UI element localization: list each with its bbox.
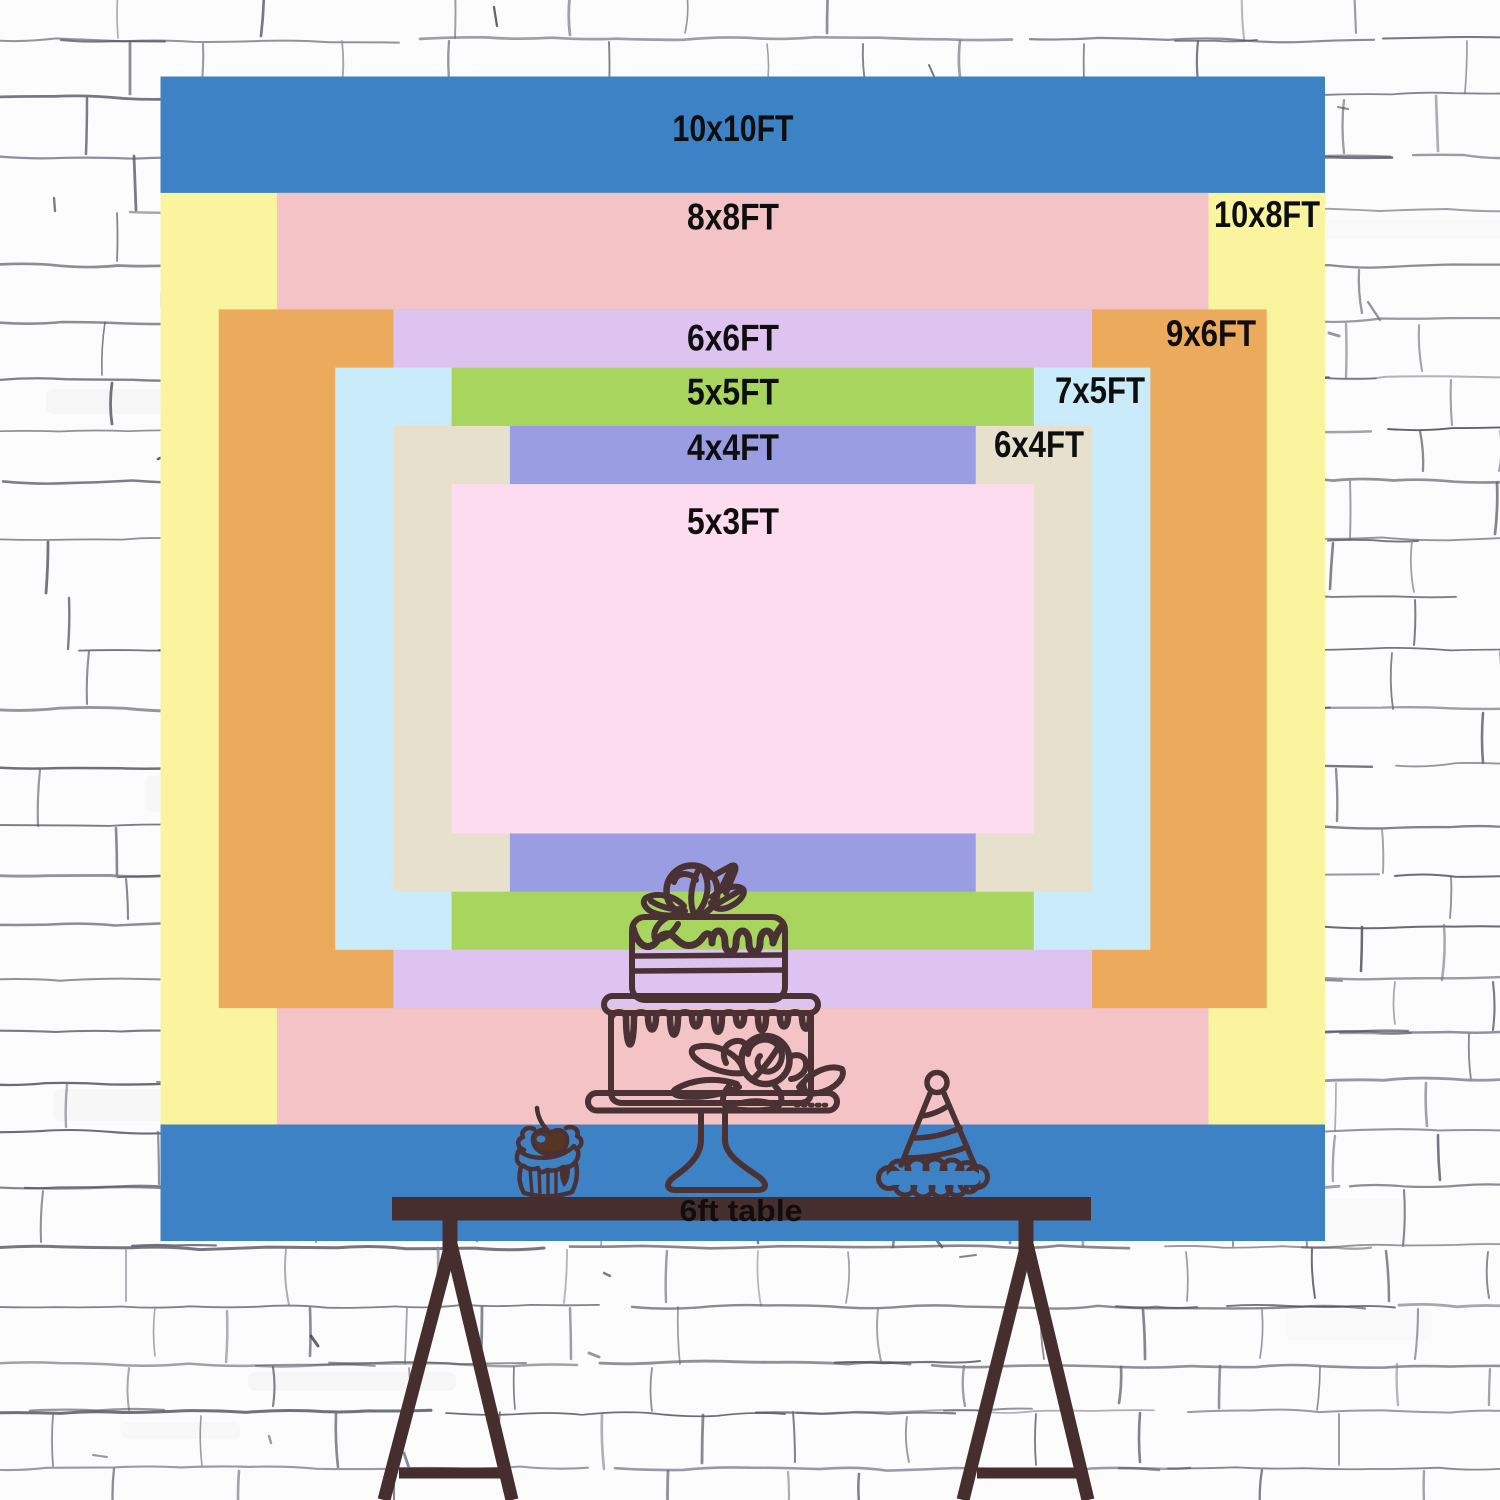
svg-text:4x4FT: 4x4FT <box>687 427 779 468</box>
svg-text:6x6FT: 6x6FT <box>687 318 779 359</box>
svg-text:10x10FT: 10x10FT <box>673 108 794 149</box>
svg-text:5x5FT: 5x5FT <box>687 372 779 413</box>
svg-text:8x8FT: 8x8FT <box>687 197 779 238</box>
svg-text:5x3FT: 5x3FT <box>687 501 779 542</box>
svg-text:7x5FT: 7x5FT <box>1055 370 1145 411</box>
svg-text:9x6FT: 9x6FT <box>1166 313 1256 354</box>
svg-text:6ft table: 6ft table <box>680 1193 803 1228</box>
svg-text:6x4FT: 6x4FT <box>994 424 1084 465</box>
svg-text:10x8FT: 10x8FT <box>1214 194 1320 235</box>
